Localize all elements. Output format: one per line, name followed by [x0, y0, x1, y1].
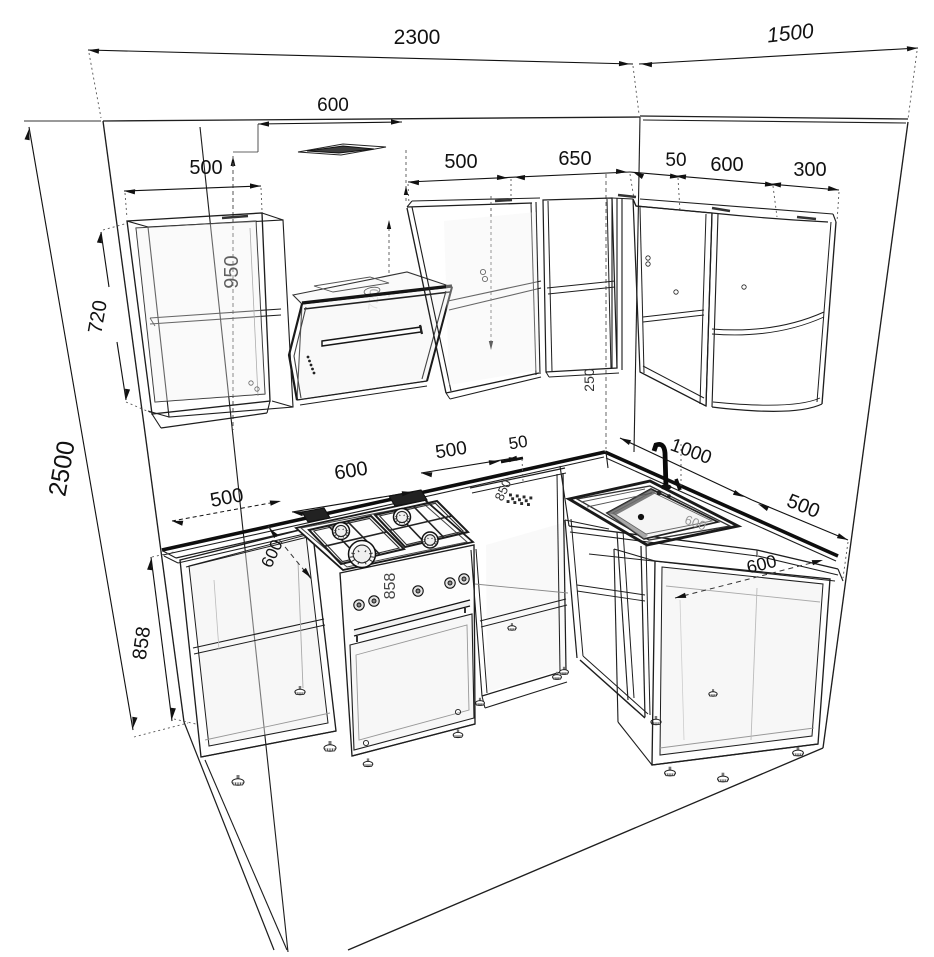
svg-text:600: 600 [317, 95, 349, 116]
svg-text:650: 650 [558, 148, 591, 170]
svg-text:50: 50 [665, 150, 686, 171]
svg-text:300: 300 [793, 159, 826, 181]
svg-text:858: 858 [129, 625, 155, 661]
svg-text:600: 600 [710, 154, 743, 176]
svg-text:500: 500 [444, 151, 477, 173]
svg-text:250: 250 [581, 368, 597, 392]
svg-text:50: 50 [507, 432, 529, 454]
svg-text:2300: 2300 [394, 26, 441, 49]
svg-text:858: 858 [382, 573, 399, 600]
svg-text:500: 500 [189, 157, 222, 179]
svg-text:1500: 1500 [766, 20, 815, 48]
